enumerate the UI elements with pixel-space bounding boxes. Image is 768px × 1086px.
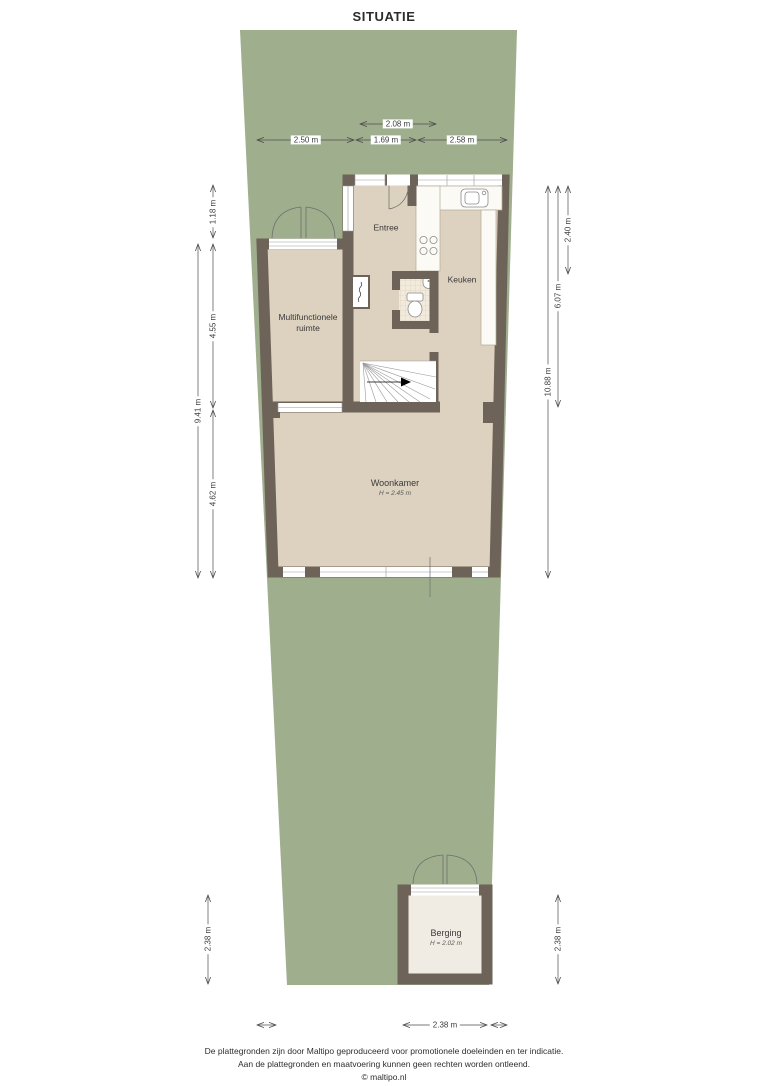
footer-copyright: © maltipo.nl bbox=[0, 1071, 768, 1084]
sink-icon bbox=[461, 189, 488, 207]
dim-label-4-55: 4.55 m bbox=[208, 311, 217, 341]
floor-plan-drawing bbox=[0, 0, 768, 1086]
toilet-tank bbox=[407, 293, 423, 301]
dim-label-2-40: 2.40 m bbox=[563, 215, 572, 245]
dim-label-2-08: 2.08 m bbox=[383, 119, 413, 128]
stairs-symbol bbox=[360, 361, 436, 402]
garden-door-opening bbox=[269, 239, 337, 250]
room-label-keuken: Keuken bbox=[448, 274, 477, 285]
toilet-room bbox=[399, 278, 434, 321]
room-label-berging: Berging H = 2.02 m bbox=[430, 928, 462, 948]
room-label-woonkamer: Woonkamer H = 2.45 m bbox=[371, 478, 419, 498]
dim-label-10-88: 10.88 m bbox=[543, 365, 552, 400]
footer-line-2: Aan de plattegronden en maatvoering kunn… bbox=[0, 1058, 768, 1071]
dim-label-4-62: 4.62 m bbox=[208, 479, 217, 509]
room-label-multifunctionele-ruimte: Multifunctionele ruimte bbox=[278, 312, 337, 334]
berging-door-opening bbox=[411, 885, 479, 896]
berging-height: H = 2.02 m bbox=[430, 940, 462, 948]
dim-label-2-58: 2.58 m bbox=[447, 135, 477, 144]
footer-line-1: De plattegronden zijn door Maltipo gepro… bbox=[0, 1045, 768, 1058]
woonkamer-height: H = 2.45 m bbox=[371, 490, 419, 498]
toilet-icon bbox=[408, 301, 422, 317]
dim-label-9-41: 9.41 m bbox=[193, 396, 202, 426]
footer-disclaimer: De plattegronden zijn door Maltipo gepro… bbox=[0, 1045, 768, 1083]
dim-label-berging-left: 2.38 m bbox=[203, 924, 212, 954]
dim-label-2-50: 2.50 m bbox=[291, 135, 321, 144]
dim-label-6-07: 6.07 m bbox=[553, 281, 562, 311]
dim-label-berging-right: 2.38 m bbox=[553, 924, 562, 954]
front-door-opening bbox=[387, 175, 410, 186]
dim-label-berging-bottom: 2.38 m bbox=[430, 1020, 460, 1029]
boiler-closet bbox=[352, 276, 369, 308]
situatie-floor-plan-page: SITUATIE bbox=[0, 0, 768, 1086]
dim-label-1-69: 1.69 m bbox=[371, 135, 401, 144]
room-label-entree: Entree bbox=[373, 222, 398, 233]
basin-tap bbox=[428, 280, 430, 282]
dim-label-1-18: 1.18 m bbox=[208, 197, 217, 227]
